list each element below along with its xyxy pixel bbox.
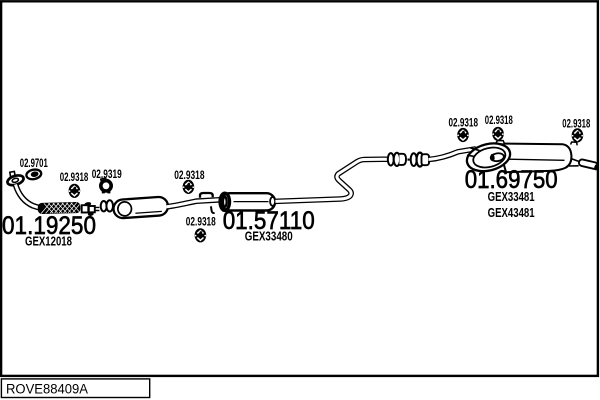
svg-text:ROVE88409A: ROVE88409A (6, 382, 88, 397)
svg-text:02.9318: 02.9318 (449, 116, 479, 130)
svg-text:GEX33480: GEX33480 (245, 229, 293, 244)
svg-text:02.9318: 02.9318 (485, 113, 513, 127)
svg-text:GEX12018: GEX12018 (25, 233, 72, 248)
svg-text:02.9701: 02.9701 (20, 156, 48, 170)
svg-text:02.9318: 02.9318 (60, 170, 89, 184)
svg-text:GEX33481: GEX33481 (488, 189, 535, 204)
svg-text:02.9318: 02.9318 (186, 215, 216, 229)
svg-text:GEX43481: GEX43481 (488, 205, 535, 220)
